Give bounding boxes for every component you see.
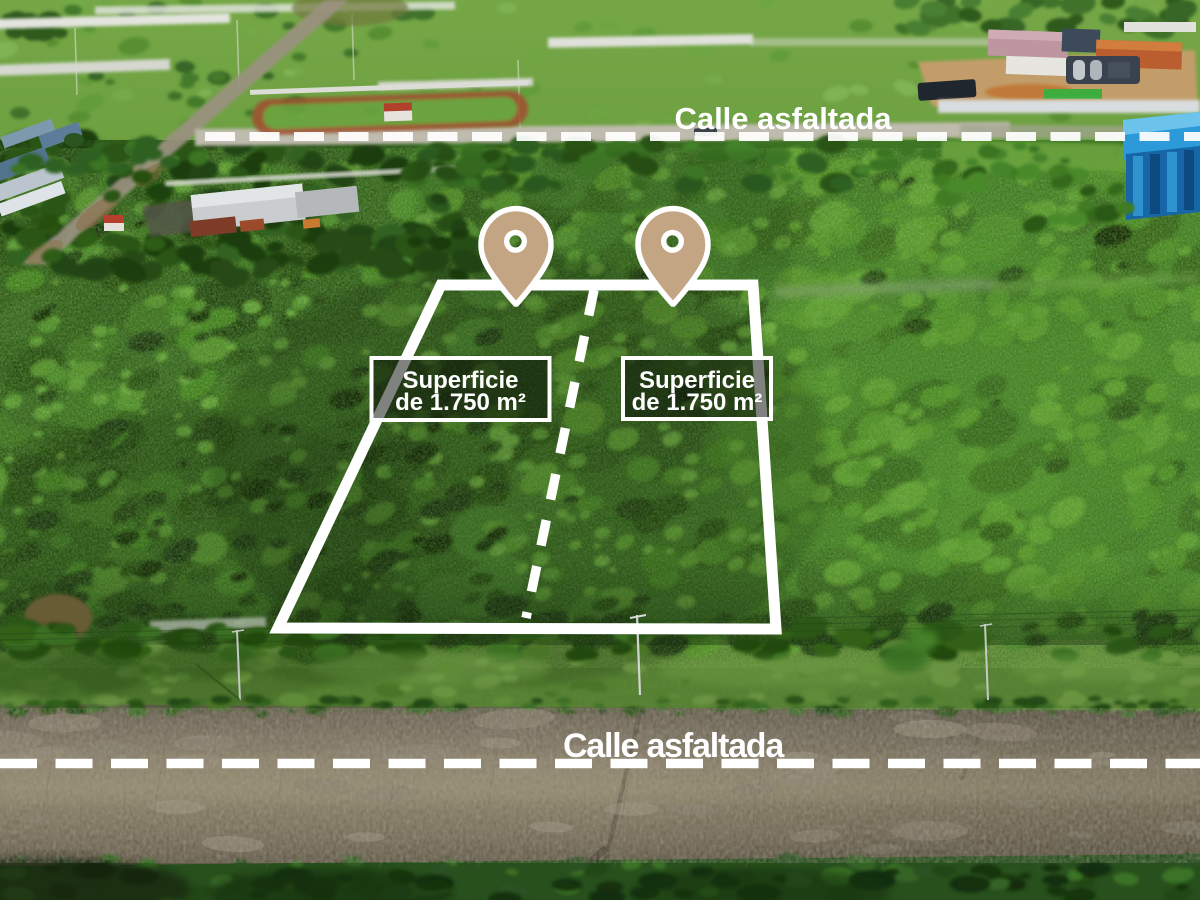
svg-text:de 1.750 m²: de 1.750 m² xyxy=(632,389,763,416)
svg-text:de 1.750 m²: de 1.750 m² xyxy=(395,389,526,416)
svg-text:Calle asfaltada: Calle asfaltada xyxy=(674,101,892,136)
